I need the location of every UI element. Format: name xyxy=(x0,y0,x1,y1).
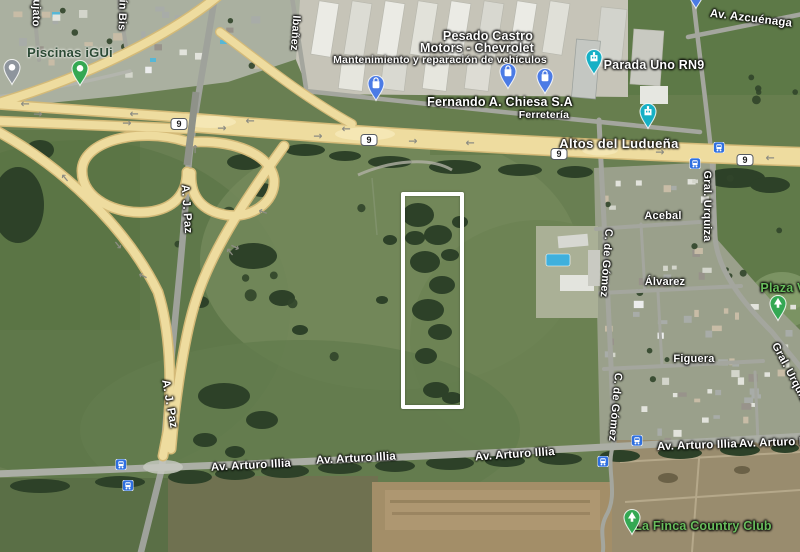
street-label: Av. Azcuénaga xyxy=(709,8,793,31)
street-label: Álvarez xyxy=(645,276,686,288)
bus-icon xyxy=(598,456,609,467)
bus-icon xyxy=(632,435,643,446)
street-label: A. J. Paz xyxy=(178,184,194,234)
bag-icon xyxy=(505,69,512,76)
transit-stop-icon[interactable] xyxy=(123,478,134,496)
road-arrow: → xyxy=(122,118,131,129)
la-finca-park-pin[interactable] xyxy=(622,508,642,541)
road-arrow: → xyxy=(33,109,42,120)
route-9-shield: 9 xyxy=(737,154,754,166)
street-label: ujato xyxy=(29,0,42,27)
satellite-map-canvas[interactable]: →→→→→→→→→→→→→→→→→→→9999ujatoín BisIbañez… xyxy=(0,0,800,552)
road-arrow: → xyxy=(257,205,269,218)
street-label: C. de Gómez xyxy=(606,372,624,442)
road-arrow: → xyxy=(765,153,774,164)
highlighted-parcel-rectangle xyxy=(401,192,464,409)
road-arrow: → xyxy=(136,269,149,283)
street-label: Av. Arturo Illia xyxy=(739,435,800,450)
poi-label[interactable]: La Finca Country Club xyxy=(634,520,772,534)
shopping-pin[interactable] xyxy=(366,74,386,107)
bus-icon xyxy=(116,459,127,470)
road-arrow: → xyxy=(465,138,474,149)
piscinas-igui-pin[interactable] xyxy=(70,59,90,92)
poi-label[interactable]: Parada Uno RN9 xyxy=(604,59,705,73)
street-label: Av. Arturo Illia xyxy=(475,446,556,464)
transit-stop-icon[interactable] xyxy=(690,156,701,174)
street-label: Acebal xyxy=(644,210,681,222)
bus-icon xyxy=(714,142,725,153)
parada-uno-pin[interactable] xyxy=(584,48,604,81)
poi-label[interactable]: Ferretería xyxy=(519,110,569,122)
bag-icon xyxy=(373,81,380,88)
road-arrow: → xyxy=(58,171,72,185)
road-arrow: → xyxy=(190,144,201,153)
bus-icon xyxy=(123,480,134,491)
dot-icon xyxy=(77,65,84,72)
building-icon xyxy=(591,55,598,61)
road-arrow: → xyxy=(341,124,350,135)
street-label: Av. Arturo Illia xyxy=(211,458,292,475)
route-9-shield: 9 xyxy=(361,134,378,146)
road-arrow: → xyxy=(20,99,29,110)
transit-stop-icon[interactable] xyxy=(598,454,609,472)
dot-icon xyxy=(9,64,16,71)
bus-icon xyxy=(690,158,701,169)
road-arrow: → xyxy=(111,238,125,252)
altos-del-luduena-pin[interactable] xyxy=(638,102,658,135)
street-label: Av. Arturo Illia xyxy=(316,451,397,468)
shopping-pin[interactable] xyxy=(498,62,518,95)
clipped-top-pin[interactable] xyxy=(686,0,706,15)
road-arrow: → xyxy=(408,136,417,147)
map-overlay-layer: →→→→→→→→→→→→→→→→→→→9999ujatoín BisIbañez… xyxy=(0,0,800,552)
road-arrow: → xyxy=(223,245,237,259)
street-label: C. de Gómez xyxy=(598,228,615,298)
street-label: Gral. Urquiza xyxy=(701,170,713,241)
locality-label: Altos del Ludueña xyxy=(559,137,678,151)
road-arrow: → xyxy=(313,131,322,142)
building-icon xyxy=(645,109,652,115)
street-label: Ibañez xyxy=(288,15,303,51)
gray-place-pin[interactable] xyxy=(2,58,22,91)
plaza-park-pin[interactable] xyxy=(768,294,788,327)
street-label: Figuera xyxy=(673,353,714,365)
street-label: Gral. Urquiza xyxy=(769,341,800,409)
transit-stop-icon[interactable] xyxy=(116,457,127,475)
transit-stop-icon[interactable] xyxy=(714,140,725,158)
road-arrow: → xyxy=(217,123,226,134)
transit-stop-icon[interactable] xyxy=(632,433,643,451)
street-label: Av. Arturo Illia xyxy=(657,438,737,453)
street-label: ín Bis xyxy=(115,0,128,31)
street-label: A. J. Paz xyxy=(159,379,180,430)
bag-icon xyxy=(542,74,549,81)
shopping-pin[interactable] xyxy=(535,67,555,100)
route-9-shield: 9 xyxy=(171,118,188,130)
road-arrow: → xyxy=(245,116,254,127)
